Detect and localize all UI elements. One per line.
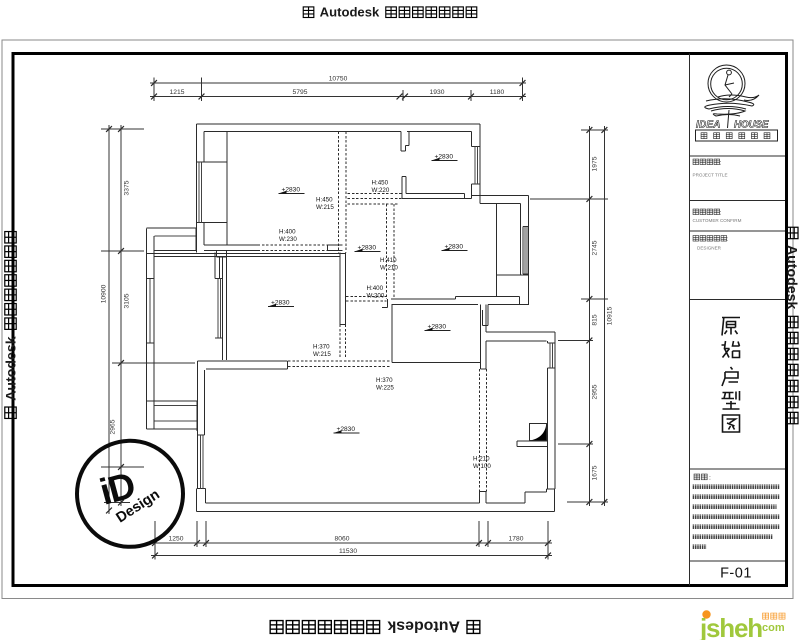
svg-text:8060: 8060 bbox=[335, 536, 350, 543]
svg-text:W:230: W:230 bbox=[279, 236, 297, 243]
svg-text:10750: 10750 bbox=[329, 76, 348, 83]
svg-text:Autodesk: Autodesk bbox=[387, 617, 460, 634]
svg-text:H:370: H:370 bbox=[313, 344, 330, 351]
svg-text:W:220: W:220 bbox=[372, 187, 390, 194]
svg-text::: : bbox=[709, 474, 711, 481]
svg-text:W:215: W:215 bbox=[316, 204, 334, 211]
svg-text:1250: 1250 bbox=[169, 536, 184, 543]
svg-text:Autodesk: Autodesk bbox=[784, 245, 800, 310]
svg-text:+2830: +2830 bbox=[271, 300, 290, 307]
svg-text:CUSTOMER CONFIRM: CUSTOMER CONFIRM bbox=[693, 218, 742, 223]
svg-text:PROJECT TITLE: PROJECT TITLE bbox=[693, 173, 728, 178]
svg-text:2955: 2955 bbox=[592, 384, 599, 399]
svg-text::: : bbox=[720, 209, 722, 216]
svg-text:1780: 1780 bbox=[509, 536, 524, 543]
svg-text:H:450: H:450 bbox=[372, 180, 389, 187]
svg-text:H:400: H:400 bbox=[279, 229, 296, 236]
svg-text:+2830: +2830 bbox=[428, 324, 447, 331]
svg-text:H:210: H:210 bbox=[473, 456, 490, 463]
svg-text:W:225: W:225 bbox=[376, 385, 394, 392]
svg-text::: : bbox=[720, 159, 722, 166]
svg-text:+2830: +2830 bbox=[358, 245, 377, 252]
svg-text:W:100: W:100 bbox=[473, 463, 491, 470]
svg-text:815: 815 bbox=[592, 314, 599, 325]
svg-text:H:450: H:450 bbox=[316, 197, 333, 204]
svg-text:W:200: W:200 bbox=[367, 293, 385, 300]
svg-text:1975: 1975 bbox=[592, 156, 599, 171]
svg-text::: : bbox=[726, 236, 728, 243]
svg-text:HOUSE: HOUSE bbox=[734, 120, 769, 131]
svg-text:5795: 5795 bbox=[293, 89, 308, 96]
svg-text:10900: 10900 bbox=[101, 284, 108, 303]
svg-text:F-01: F-01 bbox=[720, 566, 752, 582]
svg-text:+2830: +2830 bbox=[337, 426, 356, 433]
svg-text:2745: 2745 bbox=[592, 240, 599, 255]
svg-text:+2830: +2830 bbox=[435, 154, 454, 161]
svg-text:DESIGNER: DESIGNER bbox=[697, 246, 722, 251]
svg-text:11530: 11530 bbox=[339, 548, 357, 555]
svg-text:+2830: +2830 bbox=[282, 187, 301, 194]
svg-text:.com: .com bbox=[759, 622, 785, 634]
svg-text:1215: 1215 bbox=[170, 89, 185, 96]
svg-text:Autodesk: Autodesk bbox=[320, 5, 380, 20]
svg-text:IDEA: IDEA bbox=[696, 120, 721, 131]
svg-text:3375: 3375 bbox=[124, 180, 131, 195]
svg-text:1180: 1180 bbox=[490, 89, 505, 96]
svg-text:3105: 3105 bbox=[124, 293, 131, 308]
svg-text:1675: 1675 bbox=[592, 465, 599, 480]
svg-text:Autodesk: Autodesk bbox=[2, 336, 18, 401]
svg-text:W:210: W:210 bbox=[380, 265, 398, 272]
svg-text:+2830: +2830 bbox=[445, 244, 464, 251]
svg-text:W:215: W:215 bbox=[313, 351, 331, 358]
svg-text:10915: 10915 bbox=[607, 306, 614, 325]
svg-text:1930: 1930 bbox=[430, 89, 445, 96]
svg-text:H:400: H:400 bbox=[367, 285, 384, 292]
svg-text:H:410: H:410 bbox=[380, 257, 397, 264]
svg-text:2965: 2965 bbox=[110, 419, 117, 434]
svg-text:H:370: H:370 bbox=[376, 377, 393, 384]
